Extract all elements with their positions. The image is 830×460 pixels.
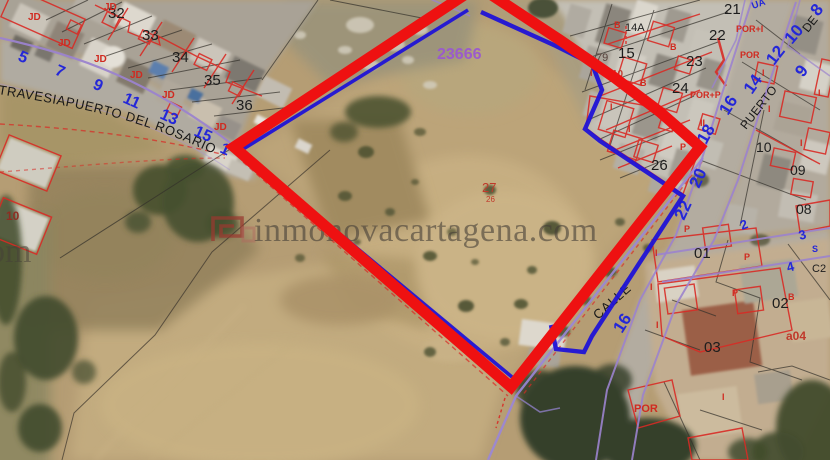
svg-text:23666: 23666 [437,46,482,63]
svg-text:POR: POR [740,50,760,60]
svg-text:21: 21 [724,1,741,18]
svg-text:POR: POR [634,403,658,415]
svg-text:JD: JD [94,54,107,65]
svg-text:10: 10 [756,139,772,155]
svg-text:POR+I: POR+I [736,24,763,34]
svg-text:B: B [640,78,647,88]
svg-text:POR+P: POR+P [690,90,721,100]
svg-text:JD: JD [58,38,71,49]
svg-text:JD: JD [28,12,41,23]
svg-text:I: I [628,124,631,134]
svg-text:15: 15 [618,45,635,62]
svg-text:I: I [656,320,659,330]
svg-text:a04: a04 [786,329,806,343]
svg-text:26: 26 [486,195,495,204]
svg-text:I: I [818,88,821,98]
svg-text:26: 26 [651,157,668,174]
svg-text:om: om [0,233,31,270]
svg-text:24: 24 [672,80,689,97]
svg-text:JD: JD [214,122,227,133]
svg-text:10: 10 [6,209,20,223]
svg-text:II: II [700,118,705,128]
svg-text:JD: JD [130,70,143,81]
svg-text:JD: JD [162,90,175,101]
svg-text:P: P [744,252,750,262]
svg-text:I: I [762,68,765,78]
svg-text:34: 34 [172,49,189,66]
svg-text:B: B [788,292,795,302]
svg-text:27: 27 [482,180,496,195]
svg-text:14A: 14A [625,22,645,34]
svg-text:JD: JD [104,2,117,13]
svg-text:I: I [722,392,725,402]
svg-text:B: B [614,20,621,30]
svg-text:S: S [812,244,818,254]
svg-text:C2: C2 [812,263,826,275]
svg-text:09: 09 [790,162,806,178]
svg-text:33: 33 [142,27,159,44]
svg-text:02: 02 [772,295,789,312]
svg-text:P: P [732,288,738,298]
svg-text:01: 01 [694,245,711,262]
svg-text:08: 08 [796,201,812,217]
svg-text:P: P [680,142,686,152]
svg-text:P: P [684,224,690,234]
svg-text:I: I [650,282,653,292]
svg-text:23: 23 [686,53,703,70]
svg-text:22: 22 [709,27,726,44]
svg-text:I: I [655,248,658,258]
svg-text:03: 03 [704,339,721,356]
svg-text:B: B [670,42,677,52]
svg-text:I: I [768,104,771,114]
svg-text:I: I [800,138,803,148]
svg-text:inmonovacartagena.com: inmonovacartagena.com [254,212,598,249]
svg-text:36: 36 [236,97,253,114]
svg-text:I: I [610,102,613,112]
svg-text:35: 35 [204,72,221,89]
